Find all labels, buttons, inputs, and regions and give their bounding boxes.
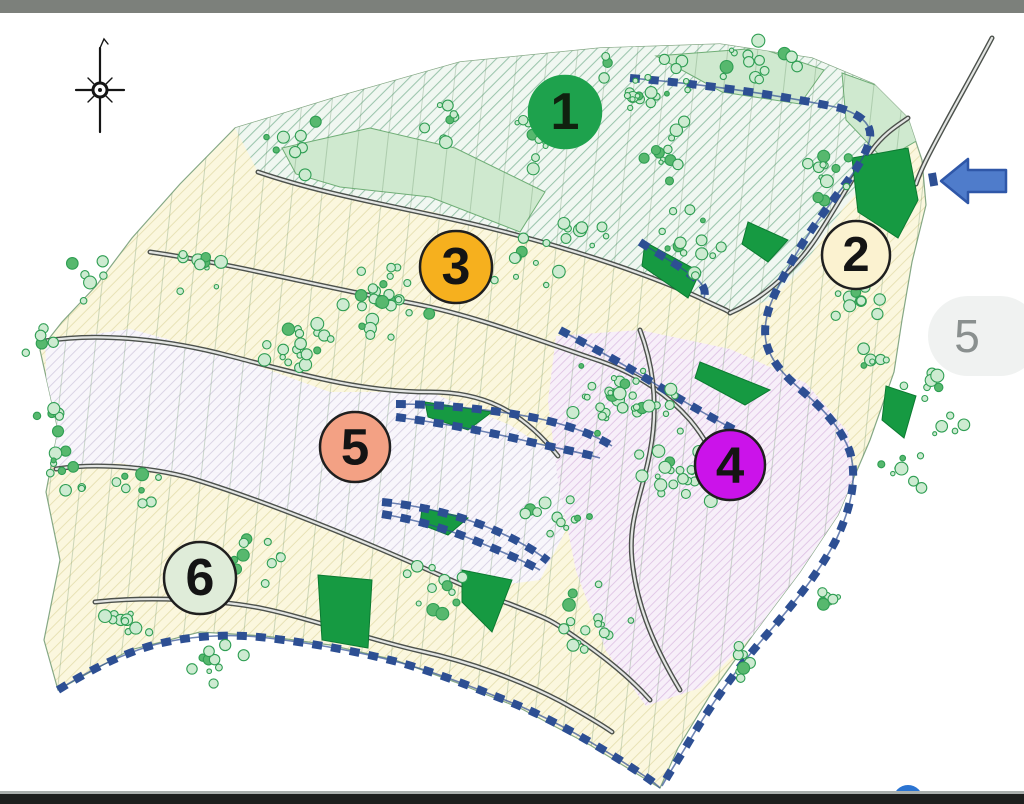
svg-text:6: 6 xyxy=(186,549,215,607)
tree-symbol xyxy=(628,105,633,110)
tree-symbol xyxy=(220,639,231,650)
tree-symbol xyxy=(387,273,393,279)
svg-text:5: 5 xyxy=(341,419,369,476)
tree-symbol xyxy=(936,421,948,433)
tree-symbol xyxy=(576,222,588,234)
tree-symbol xyxy=(53,426,64,437)
tree-symbol xyxy=(99,610,112,623)
tree-symbol xyxy=(895,462,908,475)
tree-symbol xyxy=(442,100,453,111)
tree-symbol xyxy=(891,471,895,475)
tree-symbol xyxy=(376,296,389,309)
tree-symbol xyxy=(755,55,765,65)
tree-symbol xyxy=(669,135,675,141)
tree-symbol xyxy=(130,622,142,634)
tree-symbol xyxy=(630,97,635,102)
tree-symbol xyxy=(295,130,306,141)
tree-symbol xyxy=(267,559,276,568)
tree-symbol xyxy=(645,74,651,80)
tree-symbol xyxy=(734,642,743,651)
tree-symbol xyxy=(635,450,644,459)
tree-symbol xyxy=(84,276,97,289)
tree-symbol xyxy=(299,359,311,371)
tree-symbol xyxy=(878,461,885,468)
tree-symbol xyxy=(437,103,442,108)
tree-symbol xyxy=(588,382,596,390)
zone-marker-4: 4 xyxy=(695,430,765,500)
tree-symbol xyxy=(645,87,657,99)
tree-symbol xyxy=(628,618,634,624)
tree-symbol xyxy=(285,359,292,366)
tree-symbol xyxy=(633,78,638,83)
tree-symbol xyxy=(639,153,649,163)
tree-symbol xyxy=(678,474,689,485)
tree-symbol xyxy=(861,363,867,369)
tree-symbol xyxy=(599,73,609,83)
svg-text:1: 1 xyxy=(551,83,580,141)
tree-symbol xyxy=(357,267,365,275)
tree-symbol xyxy=(35,330,46,341)
svg-text:2: 2 xyxy=(842,228,869,282)
tree-symbol xyxy=(544,282,549,287)
tree-symbol xyxy=(720,73,726,79)
tree-symbol xyxy=(883,357,889,363)
zone-marker-3: 3 xyxy=(420,231,492,303)
tree-symbol xyxy=(450,111,457,118)
tree-symbol xyxy=(659,160,663,164)
tree-symbol xyxy=(440,136,453,149)
tree-symbol xyxy=(404,280,411,287)
tree-symbol xyxy=(566,496,574,504)
tree-symbol xyxy=(122,473,128,479)
tree-symbol xyxy=(579,364,584,369)
tree-symbol xyxy=(146,497,156,507)
tree-symbol xyxy=(677,428,683,434)
tree-symbol xyxy=(337,299,349,311)
tree-symbol xyxy=(209,679,218,688)
tree-symbol xyxy=(403,570,411,578)
tree-symbol xyxy=(290,147,301,158)
tree-symbol xyxy=(696,235,707,246)
tree-symbol xyxy=(273,147,279,153)
tree-symbol xyxy=(643,400,655,412)
tree-symbol xyxy=(48,337,58,347)
tree-symbol xyxy=(818,150,830,162)
tree-symbol xyxy=(729,48,733,52)
tree-symbol xyxy=(215,256,228,269)
tree-symbol xyxy=(599,628,609,638)
tree-symbol xyxy=(857,296,866,305)
image-viewer-screen: 123456 5 xyxy=(0,0,1024,804)
tree-symbol xyxy=(216,664,223,671)
tree-symbol xyxy=(651,146,660,155)
tree-symbol xyxy=(935,383,943,391)
tree-symbol xyxy=(710,253,716,259)
tree-symbol xyxy=(567,407,579,419)
tree-symbol xyxy=(47,469,55,477)
tree-symbol xyxy=(655,479,667,491)
tree-symbol xyxy=(629,392,636,399)
arrow-left-icon xyxy=(928,159,1006,203)
tree-symbol xyxy=(952,428,958,434)
tree-symbol xyxy=(327,336,334,343)
tree-symbol xyxy=(874,294,885,305)
tree-symbol xyxy=(100,272,107,279)
tree-symbol xyxy=(909,476,919,486)
tree-symbol xyxy=(112,478,121,487)
tree-symbol xyxy=(958,419,970,431)
tree-symbol xyxy=(652,445,664,457)
tree-symbol xyxy=(239,538,248,547)
tree-symbol xyxy=(584,394,590,400)
tree-symbol xyxy=(359,323,365,329)
tree-symbol xyxy=(358,302,367,311)
tree-symbol xyxy=(366,330,375,339)
tree-symbol xyxy=(613,387,626,400)
tree-symbol xyxy=(655,474,660,479)
tree-symbol xyxy=(139,488,145,494)
tree-symbol xyxy=(420,123,430,133)
tree-symbol xyxy=(136,468,149,481)
tree-symbol xyxy=(696,248,708,260)
tree-symbol xyxy=(676,466,684,474)
tree-symbol xyxy=(406,310,412,316)
tree-symbol xyxy=(760,66,769,75)
tree-symbol xyxy=(295,329,303,337)
tree-symbol xyxy=(51,458,56,463)
tree-symbol xyxy=(701,218,706,223)
map-image: 123456 xyxy=(0,0,1024,804)
tree-symbol xyxy=(669,480,678,489)
tree-symbol xyxy=(641,368,646,373)
status-bar xyxy=(0,0,1024,13)
tree-symbol xyxy=(563,599,576,612)
tree-symbol xyxy=(665,401,674,410)
page-indicator-value: 5 xyxy=(954,309,980,363)
zone-marker-6: 6 xyxy=(164,542,236,614)
tree-symbol xyxy=(679,116,690,127)
tree-symbol xyxy=(122,484,131,493)
tree-symbol xyxy=(68,462,79,473)
tree-symbol xyxy=(532,154,540,162)
tree-symbol xyxy=(263,341,271,349)
tree-symbol xyxy=(659,54,669,64)
tree-symbol xyxy=(380,281,387,288)
tree-symbol xyxy=(301,349,312,360)
tree-symbol xyxy=(547,530,554,537)
tree-symbol xyxy=(261,580,269,588)
zone-marker-5: 5 xyxy=(320,412,390,482)
tree-symbol xyxy=(633,378,639,384)
tree-symbol xyxy=(900,382,908,390)
tree-symbol xyxy=(424,308,435,319)
tree-symbol xyxy=(33,412,40,419)
tree-symbol xyxy=(58,467,65,474)
tree-symbol xyxy=(786,51,797,62)
tree-symbol xyxy=(388,334,394,340)
tree-symbol xyxy=(590,243,595,248)
tree-symbol xyxy=(49,447,61,459)
tree-symbol xyxy=(821,175,834,188)
bottom-bar xyxy=(0,794,1024,804)
tree-symbol xyxy=(720,61,733,74)
tree-symbol xyxy=(187,664,197,674)
tree-symbol xyxy=(395,296,401,302)
tree-symbol xyxy=(411,561,423,573)
tree-symbol xyxy=(581,626,590,635)
tree-symbol xyxy=(737,674,745,682)
tree-symbol xyxy=(179,251,187,259)
tree-symbol xyxy=(520,508,530,518)
tree-symbol xyxy=(665,91,670,96)
tree-symbol xyxy=(22,349,29,356)
tree-symbol xyxy=(553,265,566,278)
tree-symbol xyxy=(844,154,852,162)
tree-symbol xyxy=(843,183,849,189)
tree-symbol xyxy=(716,242,726,252)
tree-symbol xyxy=(611,376,616,381)
tree-symbol xyxy=(48,403,60,415)
tree-symbol xyxy=(519,116,528,125)
tree-symbol xyxy=(617,403,628,414)
svg-text:3: 3 xyxy=(442,238,471,296)
tree-symbol xyxy=(635,94,640,99)
tree-symbol xyxy=(659,228,665,234)
tree-symbol xyxy=(387,263,396,272)
tree-symbol xyxy=(567,639,579,651)
tree-symbol xyxy=(755,75,764,84)
tree-symbol xyxy=(737,662,749,674)
tree-symbol xyxy=(61,446,71,456)
tree-symbol xyxy=(922,396,928,402)
tree-symbol xyxy=(665,383,677,395)
tree-symbol xyxy=(156,475,162,481)
tree-symbol xyxy=(675,237,686,248)
tree-symbol xyxy=(813,192,823,202)
tree-symbol xyxy=(453,599,460,606)
north-arrow-icon xyxy=(76,39,124,132)
tree-symbol xyxy=(673,159,683,169)
tree-symbol xyxy=(931,369,944,382)
tree-symbol xyxy=(608,390,613,395)
tree-symbol xyxy=(207,669,212,674)
tree-symbol xyxy=(264,538,271,545)
tree-symbol xyxy=(314,347,321,354)
tree-symbol xyxy=(543,240,550,247)
tree-symbol xyxy=(598,412,606,420)
tree-symbol xyxy=(195,259,206,270)
tree-symbol xyxy=(146,629,153,636)
tree-symbol xyxy=(633,404,639,410)
tree-symbol xyxy=(258,354,270,366)
tree-symbol xyxy=(665,246,670,251)
tree-symbol xyxy=(416,601,421,606)
tree-symbol xyxy=(820,162,826,168)
tree-symbol xyxy=(872,308,883,319)
tree-symbol xyxy=(900,455,906,461)
tree-symbol xyxy=(917,453,923,459)
tree-symbol xyxy=(491,276,498,283)
tree-symbol xyxy=(646,98,655,107)
tree-symbol xyxy=(603,234,608,239)
tree-symbol xyxy=(428,584,437,593)
tree-symbol xyxy=(575,515,581,521)
tree-symbol xyxy=(311,318,324,331)
tree-symbol xyxy=(238,650,249,661)
tree-symbol xyxy=(557,518,566,527)
tree-symbol xyxy=(684,79,689,84)
tree-symbol xyxy=(844,300,856,312)
tree-symbol xyxy=(436,607,449,620)
tree-symbol xyxy=(595,620,602,627)
tree-symbol xyxy=(280,354,285,359)
tree-symbol xyxy=(282,323,294,335)
tree-symbol xyxy=(947,412,954,419)
tree-symbol xyxy=(121,618,128,625)
tree-symbol xyxy=(595,430,601,436)
tree-symbol xyxy=(295,338,307,350)
tree-symbol xyxy=(818,588,827,597)
tree-symbol xyxy=(429,564,435,570)
tree-symbol xyxy=(457,572,467,582)
tree-symbol xyxy=(449,589,455,595)
tree-symbol xyxy=(310,116,321,127)
tree-symbol xyxy=(277,131,289,143)
tree-symbol xyxy=(533,260,538,265)
tree-symbol xyxy=(685,87,691,93)
tree-symbol xyxy=(539,497,551,509)
tree-symbol xyxy=(237,549,249,561)
tree-symbol xyxy=(355,290,367,302)
tree-symbol xyxy=(276,553,285,562)
tree-symbol xyxy=(97,256,108,267)
tree-symbol xyxy=(518,233,528,243)
tree-symbol xyxy=(299,169,311,181)
tree-symbol xyxy=(514,274,519,279)
tree-symbol xyxy=(792,61,803,72)
zone-marker-2: 2 xyxy=(822,221,890,289)
tree-symbol xyxy=(858,343,870,355)
tree-symbol xyxy=(527,163,539,175)
tree-symbol xyxy=(368,284,377,293)
tree-symbol xyxy=(870,359,875,364)
tree-symbol xyxy=(580,646,588,654)
tree-symbol xyxy=(692,272,700,280)
tree-symbol xyxy=(659,461,671,473)
tree-symbol xyxy=(177,288,184,295)
tree-symbol xyxy=(214,285,218,289)
tree-symbol xyxy=(680,250,686,256)
tree-symbol xyxy=(596,403,605,412)
tree-symbol xyxy=(559,624,569,634)
tree-symbol xyxy=(561,234,571,244)
svg-text:4: 4 xyxy=(716,437,745,494)
tree-symbol xyxy=(671,63,681,73)
tree-symbol xyxy=(832,164,840,172)
tree-symbol xyxy=(666,177,674,185)
tree-symbol xyxy=(278,344,289,355)
tree-symbol xyxy=(752,34,765,47)
tree-symbol xyxy=(595,581,602,588)
tree-symbol xyxy=(567,618,575,626)
tree-symbol xyxy=(663,411,668,416)
tree-symbol xyxy=(587,514,593,520)
tree-symbol xyxy=(558,218,570,230)
tree-symbol xyxy=(204,646,215,657)
page-indicator: 5 xyxy=(928,296,1024,376)
tree-symbol xyxy=(80,298,87,305)
tree-symbol xyxy=(79,485,85,491)
tree-symbol xyxy=(533,508,542,517)
tree-symbol xyxy=(803,158,813,168)
tree-symbol xyxy=(933,432,937,436)
tree-symbol xyxy=(138,499,147,508)
tree-symbol xyxy=(597,222,607,232)
zone-marker-1: 1 xyxy=(529,76,601,148)
tree-symbol xyxy=(681,489,690,498)
tree-symbol xyxy=(831,311,840,320)
tree-symbol xyxy=(636,470,648,482)
tree-symbol xyxy=(564,525,569,530)
tree-symbol xyxy=(509,253,520,264)
tree-symbol xyxy=(818,598,830,610)
tree-symbol xyxy=(602,53,610,61)
tree-symbol xyxy=(67,258,79,270)
tree-symbol xyxy=(685,205,695,215)
tree-symbol xyxy=(664,145,672,153)
tree-symbol xyxy=(624,93,630,99)
tree-symbol xyxy=(60,485,72,497)
tree-symbol xyxy=(835,291,841,297)
tree-symbol xyxy=(744,57,754,67)
tree-symbol xyxy=(264,134,269,139)
tree-symbol xyxy=(670,208,677,215)
tree-symbol xyxy=(568,589,577,598)
